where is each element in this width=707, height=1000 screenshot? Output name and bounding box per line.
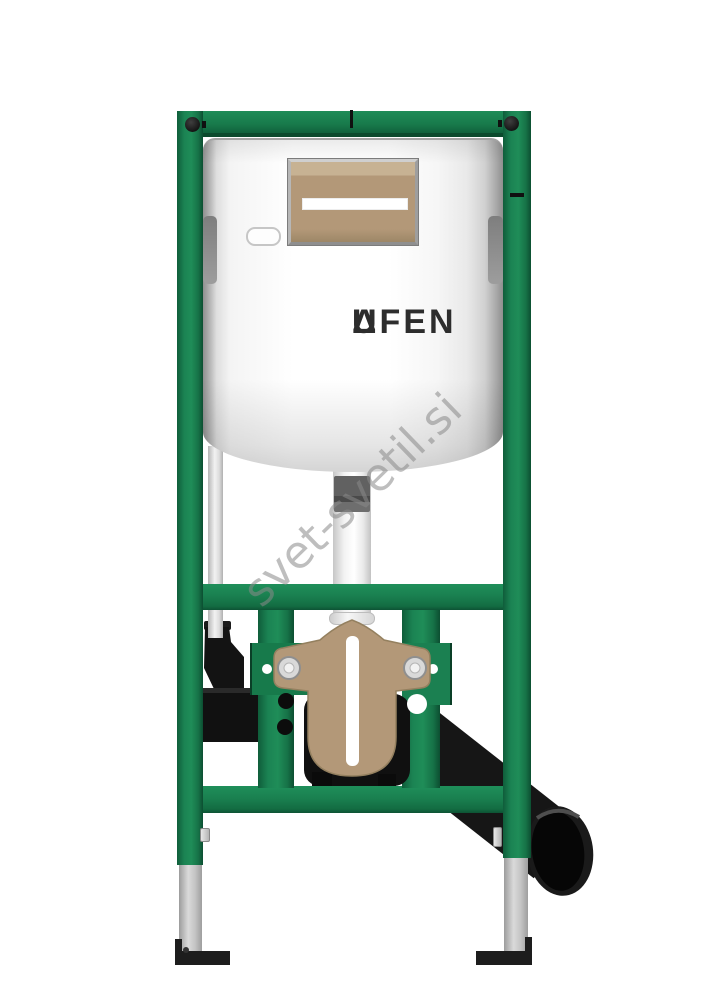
frame-hole-black-lower	[277, 719, 293, 735]
frame-hole-black-upper	[278, 693, 294, 709]
product-photo-installation-frame: LΔUFEN sve	[0, 0, 707, 1000]
flush-bend-rib-right	[378, 774, 396, 786]
flush-bend-rib-left	[312, 772, 332, 786]
frame-hole-left-small	[262, 664, 272, 674]
frame-hole-right-large	[407, 694, 427, 714]
mounting-bolt-left-head	[284, 663, 294, 673]
mounting-bolt-right-head	[410, 663, 420, 673]
shield-slot	[346, 636, 359, 766]
